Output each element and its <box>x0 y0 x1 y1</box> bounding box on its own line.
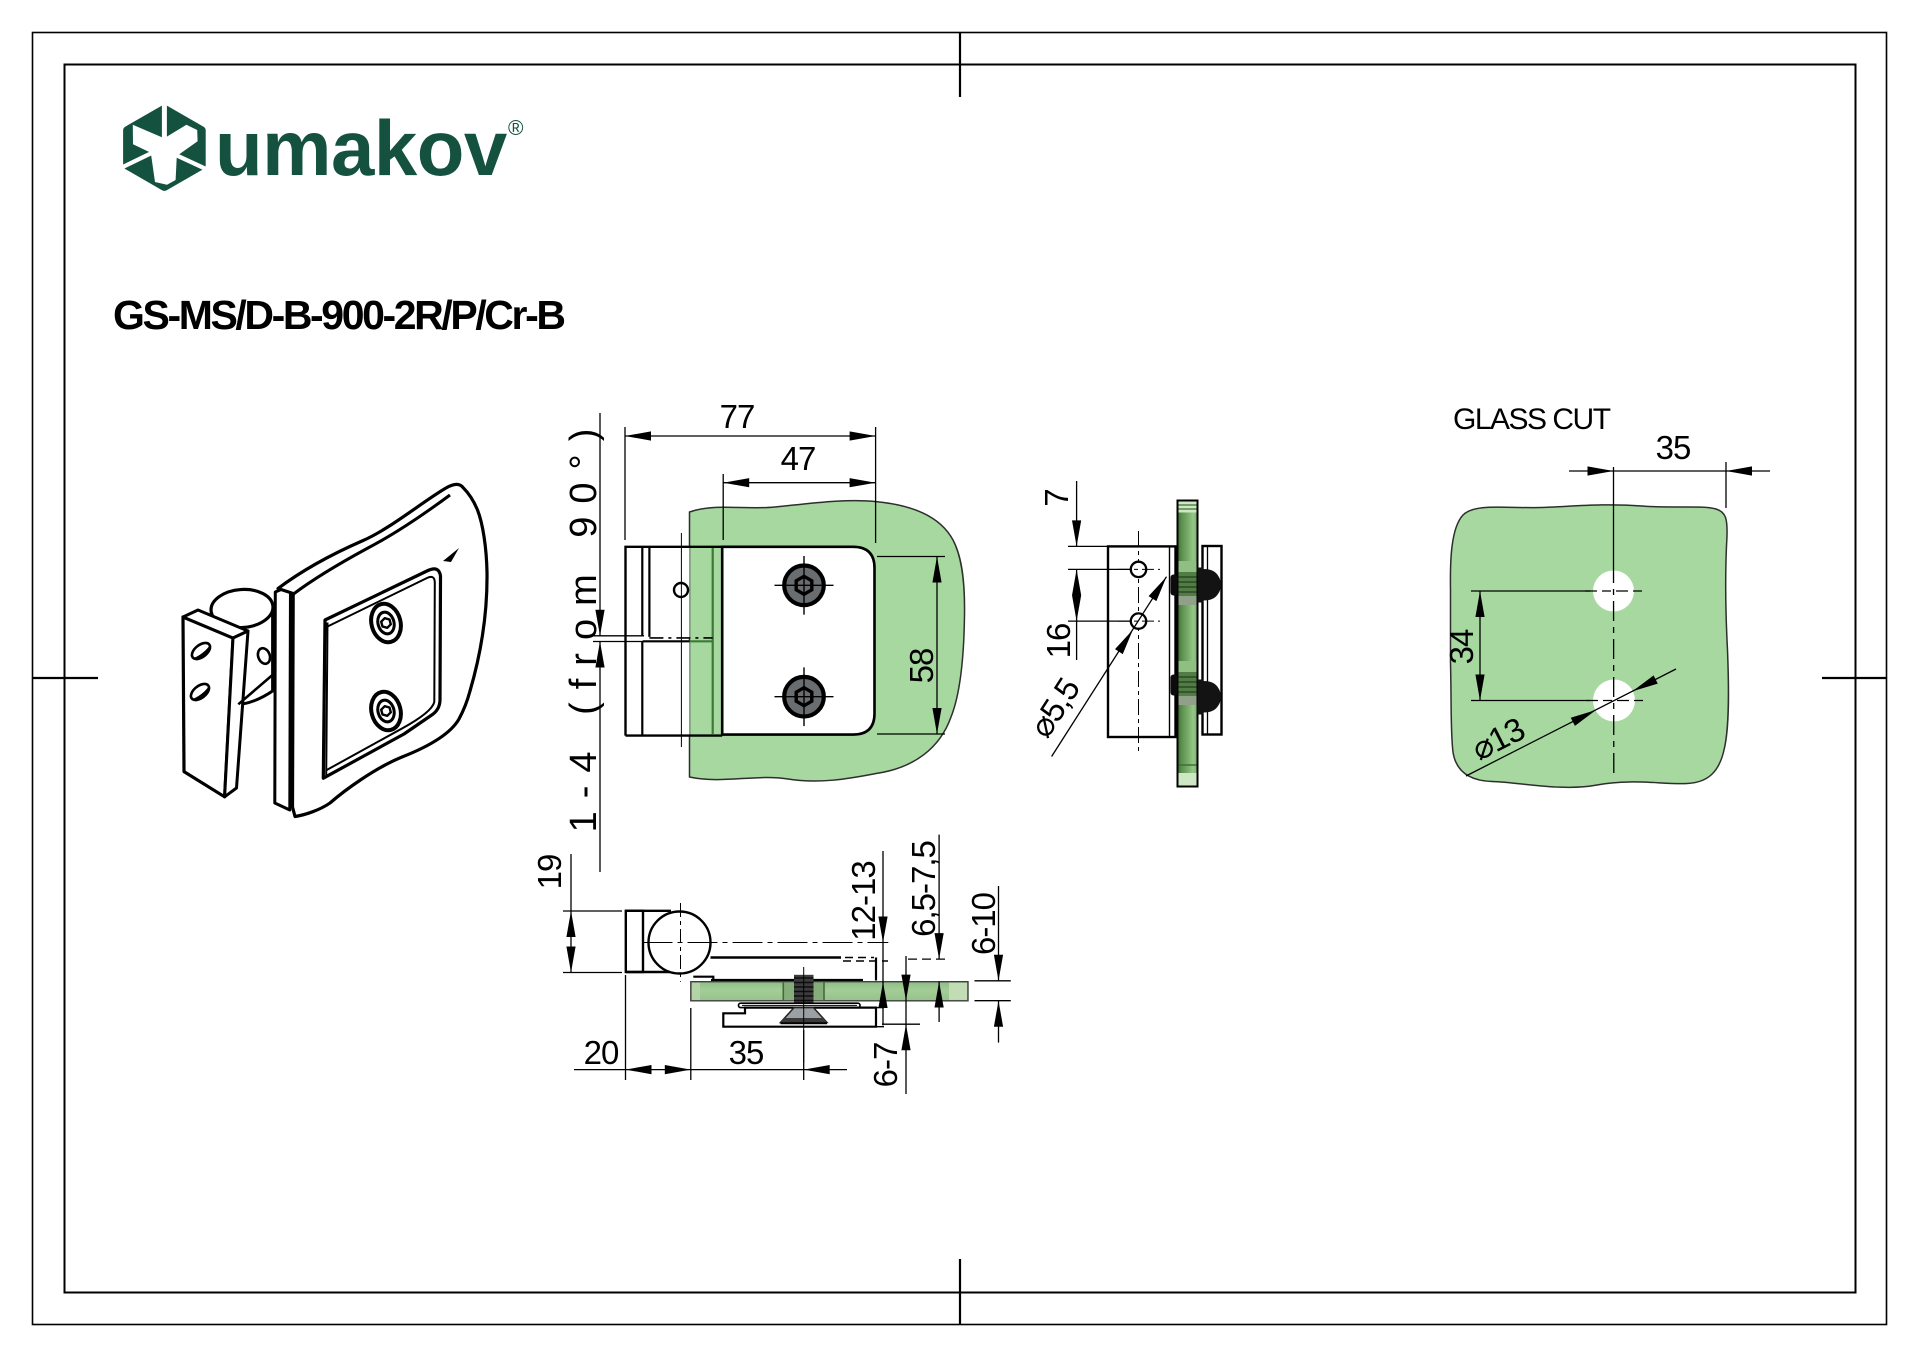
svg-text:1-4 (from 90°): 1-4 (from 90°) <box>563 416 605 833</box>
svg-text:GS-MS/D-B-900-2R/P/Cr-B: GS-MS/D-B-900-2R/P/Cr-B <box>113 292 564 338</box>
svg-text:umakov: umakov <box>215 104 508 192</box>
svg-text:®: ® <box>508 117 524 140</box>
svg-text:47: 47 <box>781 440 816 477</box>
svg-text:35: 35 <box>729 1034 764 1071</box>
svg-text:GLASS CUT: GLASS CUT <box>1453 403 1611 436</box>
svg-text:12-13: 12-13 <box>845 861 882 940</box>
svg-text:34: 34 <box>1443 629 1480 664</box>
svg-text:19: 19 <box>531 855 568 890</box>
svg-text:77: 77 <box>720 398 755 435</box>
svg-text:6-7: 6-7 <box>867 1043 904 1088</box>
svg-text:20: 20 <box>584 1034 619 1071</box>
svg-text:16: 16 <box>1040 624 1077 659</box>
svg-text:6,5-7,5: 6,5-7,5 <box>905 841 942 937</box>
svg-text:58: 58 <box>903 649 940 684</box>
svg-text:35: 35 <box>1656 429 1691 466</box>
svg-text:7: 7 <box>1038 489 1075 506</box>
svg-text:6-10: 6-10 <box>965 892 1002 955</box>
